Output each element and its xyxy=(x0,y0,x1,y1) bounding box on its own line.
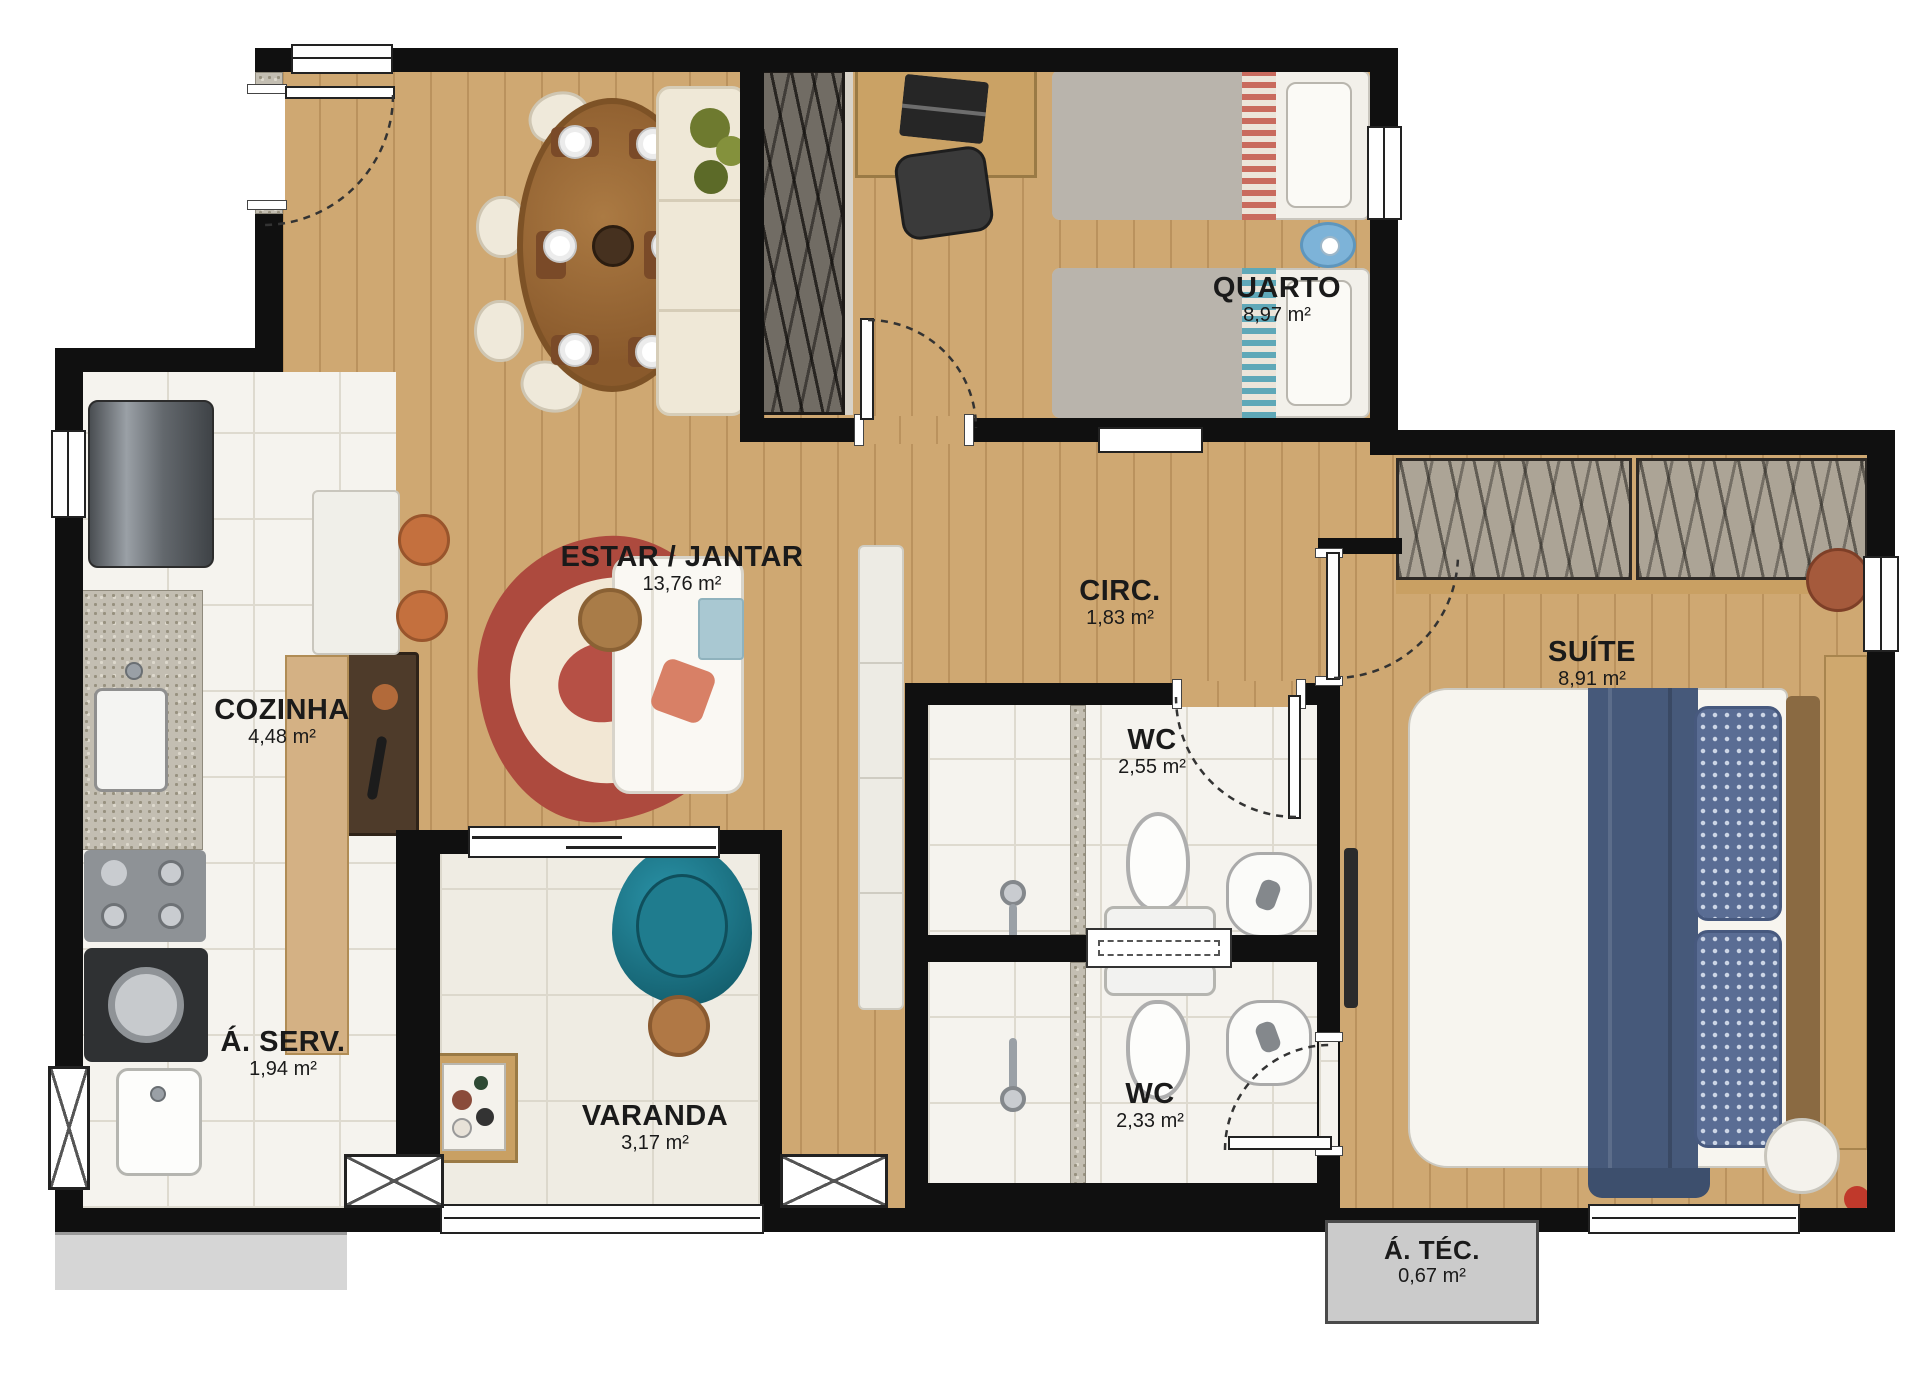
tray-item xyxy=(452,1090,472,1110)
wardrobe-edge xyxy=(845,70,853,415)
wall-segment xyxy=(1370,430,1895,455)
faucet xyxy=(125,662,143,680)
window-mullion xyxy=(1592,1217,1796,1219)
burner xyxy=(158,903,184,929)
coffee-table xyxy=(578,588,642,652)
wall-segment xyxy=(55,348,283,372)
headboard xyxy=(1786,696,1820,1160)
burner xyxy=(101,903,127,929)
window-mullion xyxy=(67,432,69,516)
island-table xyxy=(312,490,400,655)
room-label-quarto: QUARTO 8,97 m² xyxy=(1213,272,1341,327)
burner xyxy=(101,860,127,886)
window xyxy=(1588,1204,1800,1234)
wall-segment xyxy=(760,830,782,1232)
sliding-door-track xyxy=(566,846,716,849)
room-area: 3,17 m² xyxy=(582,1132,728,1154)
tv-panel xyxy=(1344,848,1358,1008)
burner xyxy=(158,860,184,886)
sideboard xyxy=(858,545,904,1010)
room-label-atec: Á. TÉC. 0,67 m² xyxy=(1384,1236,1480,1288)
room-area: 1,94 m² xyxy=(221,1058,346,1080)
suite-door-leaf xyxy=(1326,552,1340,680)
wall-segment xyxy=(1867,430,1895,1232)
pouf-white xyxy=(1764,1118,1840,1194)
room-area: 4,48 m² xyxy=(214,726,350,748)
door-jamb xyxy=(247,84,287,94)
cooktop xyxy=(84,850,206,942)
room-area: 8,97 m² xyxy=(1213,304,1341,326)
dinner-plate xyxy=(558,125,592,159)
room-title: VARANDA xyxy=(582,1100,728,1132)
quarto-door-leaf xyxy=(860,318,874,420)
laptop xyxy=(899,74,989,144)
room-title: SUÍTE xyxy=(1548,636,1636,668)
egg-chair-cushion xyxy=(636,874,728,978)
dinner-plate xyxy=(558,333,592,367)
tray-item xyxy=(476,1108,494,1126)
room-area: 2,55 m² xyxy=(1118,756,1186,778)
wc-door-leaf xyxy=(1228,1136,1332,1150)
stool-terracotta xyxy=(396,590,448,642)
wall-segment xyxy=(255,48,1398,72)
room-title: WC xyxy=(1118,724,1186,756)
dinner-plate xyxy=(543,229,577,263)
wardrobe-base xyxy=(1396,580,1868,594)
throw-blanket xyxy=(698,598,744,660)
center-bowl xyxy=(592,225,634,267)
door-jamb xyxy=(964,414,974,446)
shower-divider xyxy=(1070,705,1086,935)
window xyxy=(291,44,393,74)
dining-chair xyxy=(474,300,524,362)
room-area: 0,67 m² xyxy=(1384,1265,1480,1287)
bed-blanket-drape xyxy=(1588,1168,1710,1198)
door-jamb xyxy=(1315,1032,1343,1042)
room-label-circ: CIRC. 1,83 m² xyxy=(1079,575,1160,630)
room-area: 2,33 m² xyxy=(1116,1110,1184,1132)
room-label-suite: SUÍTE 8,91 m² xyxy=(1548,636,1636,691)
window-mullion xyxy=(293,57,391,59)
balcony-side-table xyxy=(648,995,710,1057)
room-area: 1,83 m² xyxy=(1079,607,1160,629)
room-title: Á. SERV. xyxy=(221,1026,346,1058)
shower-arm xyxy=(1009,1038,1017,1090)
quarto-wardrobe xyxy=(757,70,845,415)
suite-wardrobe xyxy=(1396,458,1632,580)
room-title: WC xyxy=(1116,1078,1184,1110)
room-title: ESTAR / JANTAR xyxy=(561,541,804,573)
hatched-window xyxy=(48,1066,90,1190)
door-opening xyxy=(1319,1040,1338,1148)
shower-head xyxy=(1000,1086,1026,1112)
pouf-terracotta xyxy=(1806,548,1870,612)
room-title: CIRC. xyxy=(1079,575,1160,607)
suite-side-shelf xyxy=(1824,655,1868,1150)
vase xyxy=(372,684,398,710)
hatched-panel xyxy=(344,1154,444,1208)
nightstand-cup xyxy=(1320,236,1340,256)
tray-item xyxy=(452,1118,472,1138)
floor-plan: ESTAR / JANTAR 13,76 m² QUARTO 8,97 m² C… xyxy=(0,0,1920,1379)
wall-niche-inner xyxy=(1098,940,1220,956)
hatched-panel xyxy=(780,1154,888,1208)
room-label-aserv: Á. SERV. 1,94 m² xyxy=(221,1026,346,1081)
suite-pillow xyxy=(1694,706,1782,921)
bed-blanket-blue xyxy=(1588,688,1698,1168)
shower-divider xyxy=(1070,962,1086,1190)
tank-faucet xyxy=(150,1086,166,1102)
bed-pillow xyxy=(1286,82,1352,208)
room-label-wc1: WC 2,55 m² xyxy=(1118,724,1186,779)
room-area: 13,76 m² xyxy=(561,573,804,595)
room-label-varanda: VARANDA 3,17 m² xyxy=(582,1100,728,1155)
sidewalk-strip xyxy=(55,1232,347,1290)
entry-door-leaf xyxy=(285,86,395,99)
room-label-estar-jantar: ESTAR / JANTAR 13,76 m² xyxy=(561,541,804,596)
wall-segment xyxy=(740,48,764,420)
sliding-door xyxy=(468,826,720,858)
plant xyxy=(694,160,728,194)
door-opening xyxy=(862,416,966,444)
sliding-door-track xyxy=(472,836,622,839)
window-mullion xyxy=(1880,558,1882,650)
balcony-rail-window xyxy=(440,1204,764,1234)
room-title: COZINHA xyxy=(214,694,350,726)
door-opening xyxy=(1180,681,1298,707)
window-mullion xyxy=(1383,128,1385,218)
room-title: QUARTO xyxy=(1213,272,1341,304)
laundry-tank xyxy=(116,1068,202,1176)
wall-segment xyxy=(905,1183,1328,1213)
bed-runner-red xyxy=(1242,70,1276,220)
toilet-bowl xyxy=(1126,812,1190,912)
room-title: Á. TÉC. xyxy=(1384,1236,1480,1265)
wall-segment xyxy=(740,418,1398,442)
shower-head xyxy=(1000,880,1026,906)
door-jamb xyxy=(247,200,287,210)
stool-terracotta xyxy=(398,514,450,566)
entry-opening xyxy=(251,92,285,202)
bed-blanket-gray xyxy=(1052,70,1242,220)
tray-item xyxy=(474,1076,488,1090)
door-jamb xyxy=(1172,679,1182,709)
wc-door-leaf xyxy=(1288,695,1301,819)
fridge xyxy=(88,400,214,568)
kitchen-sink xyxy=(94,688,168,792)
door-leaf xyxy=(1098,427,1203,453)
room-label-cozinha: COZINHA 4,48 m² xyxy=(214,694,350,749)
wall-segment xyxy=(1370,48,1398,442)
serving-tray xyxy=(442,1063,506,1151)
room-area: 8,91 m² xyxy=(1548,668,1636,690)
suite-pillow xyxy=(1694,930,1782,1148)
desk-chair xyxy=(892,144,995,242)
washer-drum xyxy=(108,967,184,1043)
window-mullion xyxy=(444,1217,760,1219)
room-label-wc2: WC 2,33 m² xyxy=(1116,1078,1184,1133)
exterior-mask-top-right xyxy=(1398,0,1920,430)
